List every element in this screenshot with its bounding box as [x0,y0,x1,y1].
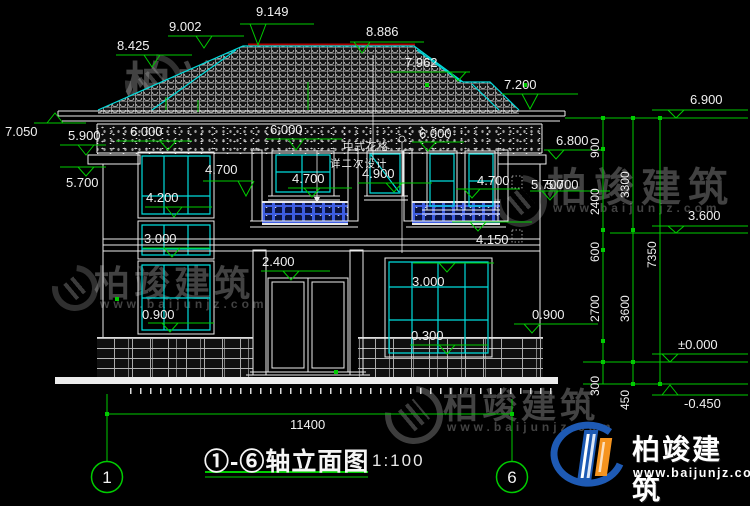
brand-logo: 柏竣建筑 www.baijunjz.com [540,418,750,506]
elevation-label: 6.800 [556,134,589,147]
vertical-dim: 3300 [619,171,631,198]
wall-quoin-marks [512,176,522,242]
elevation-label: 0.300 [411,329,444,342]
elevation-label: 8.886 [366,25,399,38]
drawing-title: ①-⑥轴立面图 [204,442,369,478]
elevation-label: 6.000 [270,123,303,136]
elevation-label: 7.200 [504,78,537,91]
elevation-label: -0.450 [684,397,721,410]
ground-line [55,377,558,384]
elevation-label: 4.700 [292,172,325,185]
vertical-dim: 900 [589,138,601,158]
elevation-label: 2.400 [262,255,295,268]
vertical-dim: 2400 [589,188,601,215]
elevation-label: 0.900 [532,308,565,321]
elevation-label: 5.700 [66,176,99,189]
elevation-label: 9.002 [169,20,202,33]
elevation-label: 5.700 [546,178,579,191]
note-lattice: 中式花格 [343,139,389,154]
elevation-label: 3.000 [412,275,445,288]
elevation-label: 4.200 [146,191,179,204]
elevation-label: 6.900 [690,93,723,106]
brand-logo-url: www.baijunjz.com [633,466,750,480]
elevation-label: ±0.000 [678,338,718,351]
grid-bubble-6: 6 [504,468,520,488]
brand-logo-icon [540,418,630,506]
cad-elevation-drawing: 柏竣建筑 www.baijunjz.com 柏竣建筑 www.baijunjz.… [0,0,750,506]
elevation-label: 7.962 [405,56,438,69]
elevation-markers [34,24,748,395]
total-width-dim: 11400 [290,417,325,432]
elevation-label: 6.000 [130,125,163,138]
drawing-scale: 1:100 [372,451,425,471]
elevation-label: 6.000 [419,127,452,140]
vertical-dim: 600 [589,242,601,262]
elevation-label: 9.149 [256,5,289,18]
elevation-label: 8.425 [117,39,150,52]
elevation-label: 7.050 [5,125,38,138]
elevation-label: 3.600 [688,209,721,222]
vertical-dim: 3600 [619,295,631,322]
elevation-label: 3.000 [144,232,177,245]
vertical-dim: 7350 [646,241,658,268]
vertical-dim: 2700 [589,295,601,322]
elevation-label: 4.150 [476,233,509,246]
note-secondary-design: 详二次设计 [330,156,388,171]
vertical-dim: 300 [589,376,601,396]
elevation-label: 4.700 [205,163,238,176]
grid-bubble-1: 1 [99,468,115,488]
vertical-dim: 450 [619,390,631,410]
elevation-label: 0.900 [142,308,175,321]
elevation-label: 5.900 [68,129,101,142]
elevation-label: 4.700 [477,174,510,187]
